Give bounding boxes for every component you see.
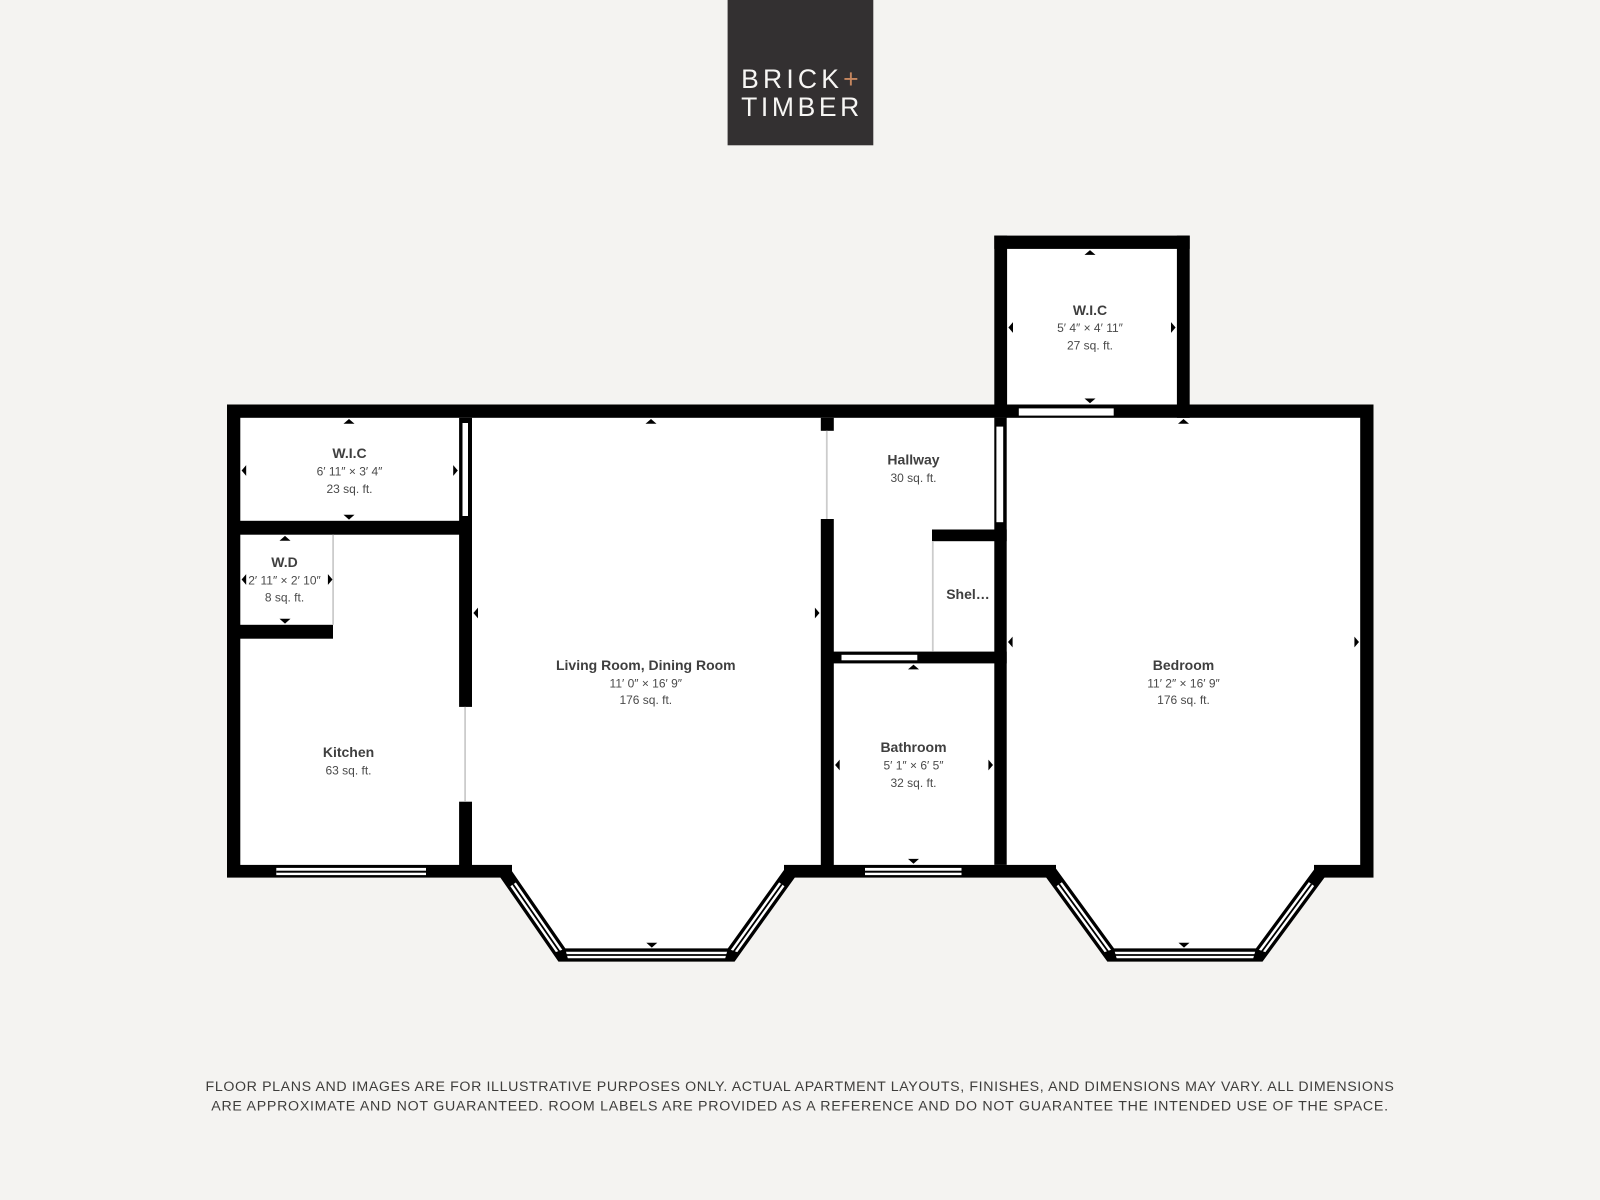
svg-text:W.I.C: W.I.C — [332, 445, 366, 461]
svg-text:W.I.C: W.I.C — [1073, 302, 1107, 318]
svg-text:Kitchen: Kitchen — [323, 744, 374, 760]
svg-text:11′ 0″ × 16′ 9″: 11′ 0″ × 16′ 9″ — [610, 677, 683, 691]
svg-text:Living Room, Dining Room: Living Room, Dining Room — [556, 657, 736, 673]
svg-text:2′ 11″ × 2′ 10″: 2′ 11″ × 2′ 10″ — [248, 573, 321, 587]
svg-text:63 sq. ft.: 63 sq. ft. — [325, 764, 371, 778]
svg-text:Bedroom: Bedroom — [1153, 657, 1214, 673]
svg-text:23 sq. ft.: 23 sq. ft. — [326, 482, 372, 496]
svg-text:27 sq. ft.: 27 sq. ft. — [1067, 338, 1113, 352]
svg-text:TIMBER: TIMBER — [741, 92, 863, 122]
svg-text:176 sq. ft.: 176 sq. ft. — [1157, 693, 1210, 707]
svg-text:ARE APPROXIMATE AND NOT GUARAN: ARE APPROXIMATE AND NOT GUARANTEED. ROOM… — [211, 1099, 1389, 1115]
svg-text:Bathroom: Bathroom — [880, 739, 946, 755]
svg-text:FLOOR PLANS AND IMAGES ARE FOR: FLOOR PLANS AND IMAGES ARE FOR ILLUSTRAT… — [206, 1079, 1395, 1095]
svg-text:5′ 1″ × 6′ 5″: 5′ 1″ × 6′ 5″ — [883, 759, 944, 773]
svg-text:Hallway: Hallway — [887, 451, 939, 467]
svg-text:176 sq. ft.: 176 sq. ft. — [619, 693, 672, 707]
svg-text:32 sq. ft.: 32 sq. ft. — [890, 776, 936, 790]
svg-text:BRICK+: BRICK+ — [741, 64, 863, 94]
svg-text:11′ 2″ × 16′ 9″: 11′ 2″ × 16′ 9″ — [1147, 677, 1220, 691]
svg-text:6′ 11″ × 3′ 4″: 6′ 11″ × 3′ 4″ — [317, 465, 384, 479]
svg-text:5′ 4″ × 4′ 11″: 5′ 4″ × 4′ 11″ — [1057, 321, 1124, 335]
svg-text:Shel…: Shel… — [946, 586, 990, 602]
svg-text:8 sq. ft.: 8 sq. ft. — [265, 591, 304, 605]
svg-text:30 sq. ft.: 30 sq. ft. — [890, 471, 936, 485]
svg-text:W.D: W.D — [271, 554, 297, 570]
